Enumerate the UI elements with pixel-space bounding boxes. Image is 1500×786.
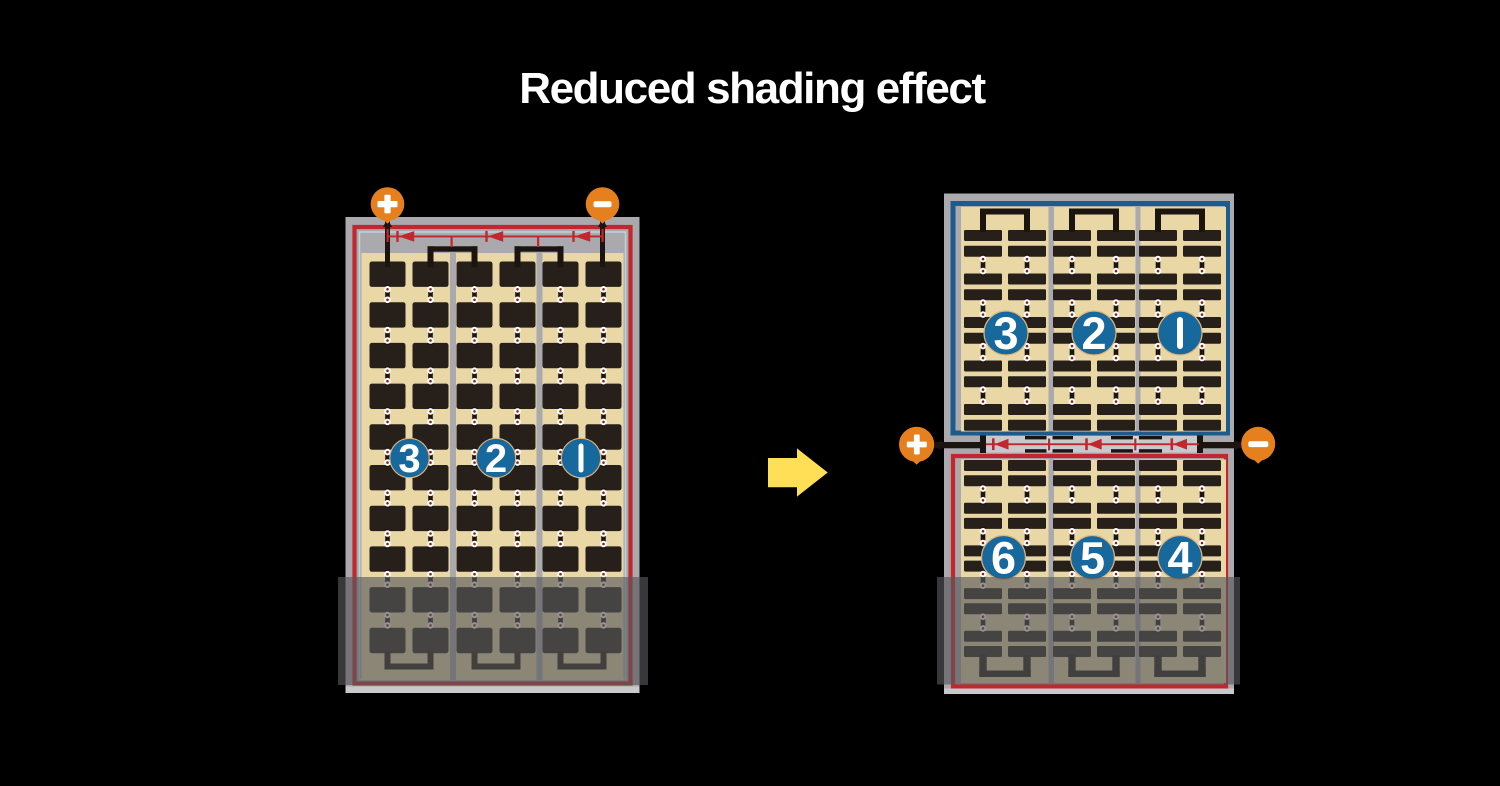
svg-text:4: 4 bbox=[1167, 533, 1192, 584]
svg-text:2: 2 bbox=[485, 437, 507, 481]
svg-text:3: 3 bbox=[398, 437, 420, 481]
svg-text:2: 2 bbox=[1081, 308, 1106, 359]
svg-text:Reduced shading effect: Reduced shading effect bbox=[519, 64, 986, 113]
svg-text:5: 5 bbox=[1080, 533, 1105, 584]
svg-text:3: 3 bbox=[993, 308, 1018, 359]
svg-text:6: 6 bbox=[991, 533, 1016, 584]
